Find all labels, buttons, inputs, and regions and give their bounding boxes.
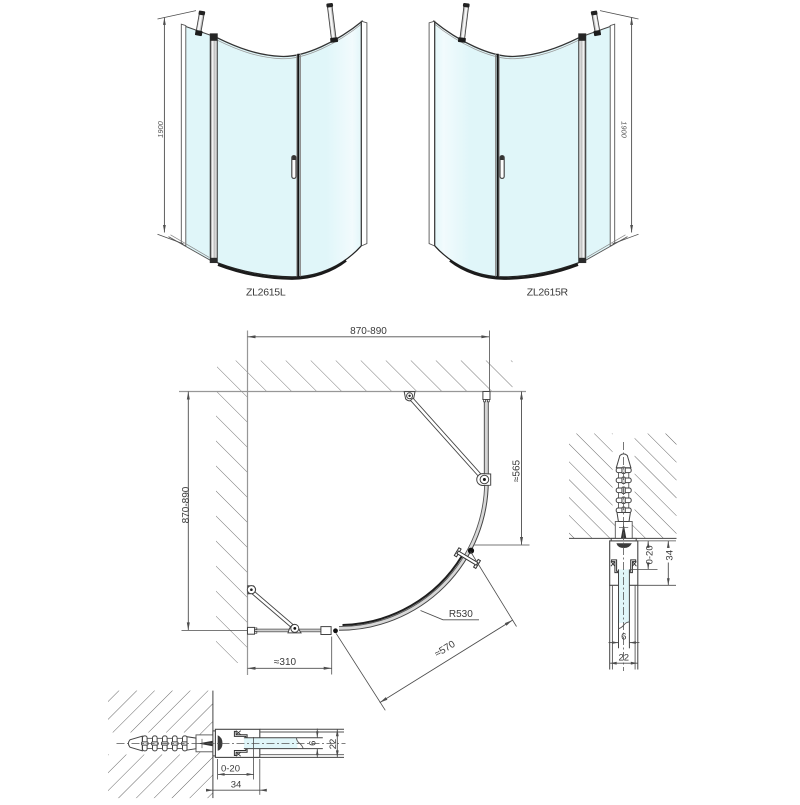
svg-text:6: 6 — [621, 632, 626, 643]
svg-text:R530: R530 — [449, 609, 473, 620]
svg-text:870-890: 870-890 — [350, 326, 387, 337]
svg-text:34: 34 — [231, 780, 242, 791]
svg-text:1900: 1900 — [619, 121, 628, 139]
svg-text:≈565: ≈565 — [512, 459, 523, 482]
svg-text:≈310: ≈310 — [274, 657, 297, 668]
svg-text:ZL2615L: ZL2615L — [246, 286, 286, 298]
svg-text:1900: 1900 — [156, 120, 165, 138]
svg-text:0-20: 0-20 — [644, 545, 655, 564]
svg-text:0-20: 0-20 — [221, 763, 240, 774]
svg-text:870-890: 870-890 — [181, 486, 192, 523]
svg-text:22: 22 — [328, 739, 339, 750]
svg-text:22: 22 — [619, 653, 630, 664]
svg-text:34: 34 — [664, 550, 675, 561]
svg-text:6: 6 — [307, 741, 318, 746]
svg-text:ZL2615R: ZL2615R — [527, 287, 569, 299]
